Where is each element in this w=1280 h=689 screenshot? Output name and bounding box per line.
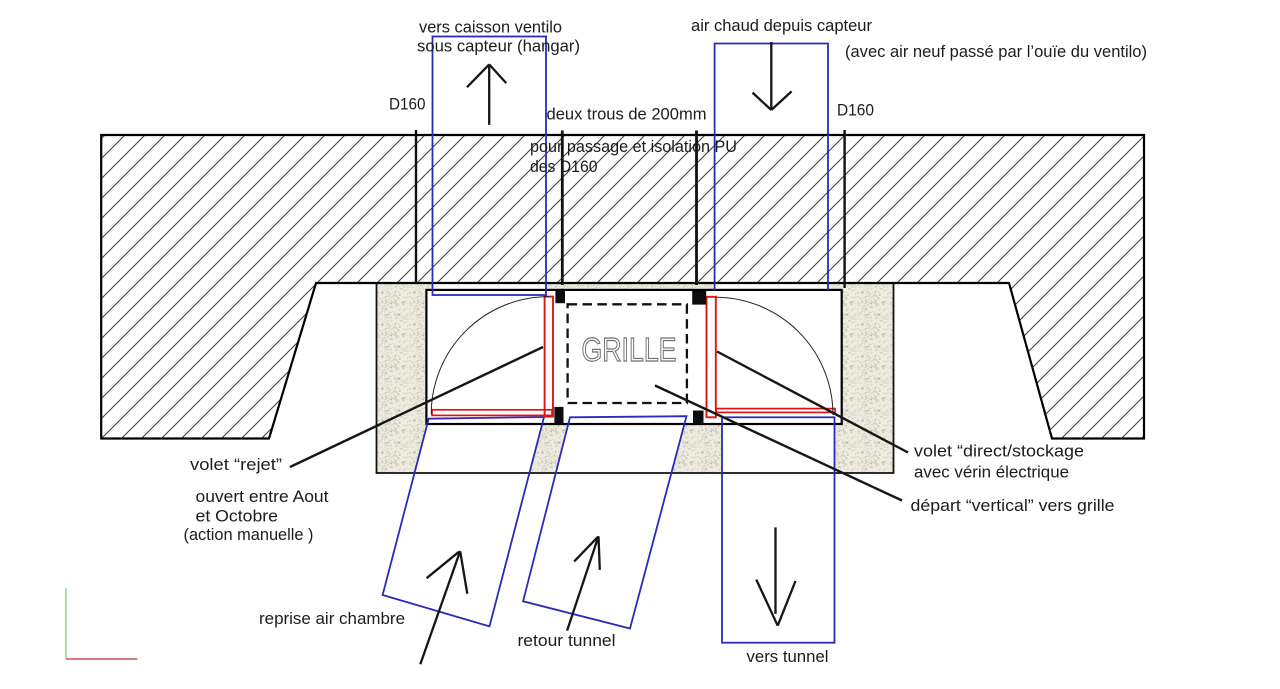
svg-text:et Octobre: et Octobre bbox=[196, 507, 279, 526]
svg-text:(avec air neuf passé par l’ouï: (avec air neuf passé par l’ouïe du venti… bbox=[845, 42, 1147, 61]
svg-text:D160: D160 bbox=[837, 101, 874, 120]
svg-text:pour passage et isolation PU: pour passage et isolation PU bbox=[530, 137, 737, 156]
svg-text:départ “vertical” vers grille: départ “vertical” vers grille bbox=[911, 496, 1115, 515]
svg-text:deux trous de 200mm: deux trous de 200mm bbox=[547, 105, 707, 124]
svg-text:volet “direct/stockage: volet “direct/stockage bbox=[914, 442, 1084, 461]
svg-text:vers caisson ventilo: vers caisson ventilo bbox=[419, 18, 562, 37]
svg-text:des D160: des D160 bbox=[530, 157, 598, 176]
svg-text:retour tunnel: retour tunnel bbox=[518, 631, 616, 650]
svg-text:air chaud depuis capteur: air chaud depuis capteur bbox=[691, 16, 872, 35]
svg-text:sous capteur (hangar): sous capteur (hangar) bbox=[417, 37, 580, 56]
svg-text:volet “rejet”: volet “rejet” bbox=[190, 455, 282, 474]
svg-text:reprise air chambre: reprise air chambre bbox=[259, 609, 405, 628]
svg-text:(action manuelle ): (action manuelle ) bbox=[184, 525, 314, 544]
svg-text:D160: D160 bbox=[389, 95, 426, 114]
svg-text:ouvert entre Aout: ouvert entre Aout bbox=[196, 487, 329, 506]
svg-text:vers tunnel: vers tunnel bbox=[747, 647, 829, 666]
svg-text:avec vérin électrique: avec vérin électrique bbox=[914, 463, 1069, 482]
svg-text:GRILLE: GRILLE bbox=[582, 331, 677, 368]
